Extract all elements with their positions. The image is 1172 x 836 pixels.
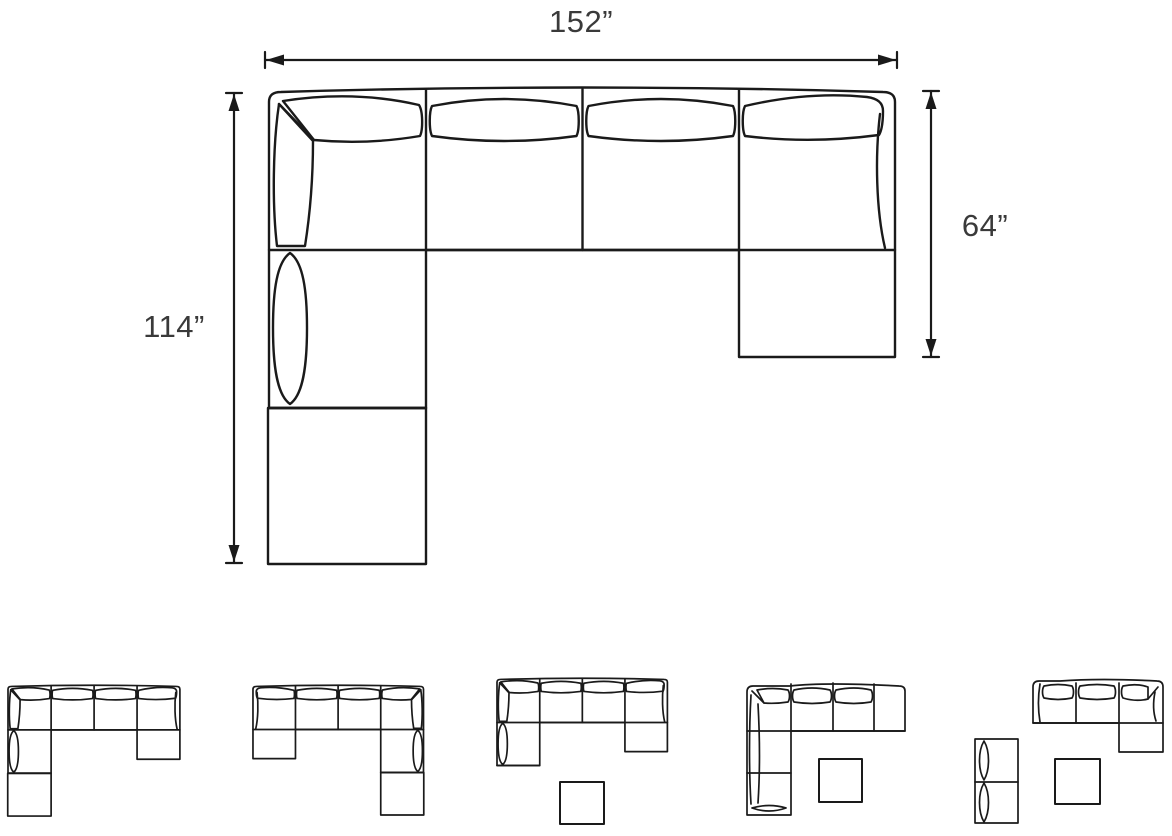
detached-ottoman: [1055, 759, 1100, 804]
thumbnail-config-4: [747, 683, 905, 815]
detached-ottoman: [560, 782, 604, 824]
thumbnail-config-1: [8, 685, 180, 816]
arrowhead-left-icon: [266, 55, 284, 66]
dimension-right-depth: 64”: [923, 91, 1008, 357]
dimension-overall-width: 152”: [265, 4, 897, 68]
configuration-thumbnail-row: [8, 678, 1163, 824]
sofa-dimension-diagram: 152” 114” 64”: [0, 0, 1172, 836]
arrowhead-down-icon: [926, 339, 937, 356]
main-sectional-drawing: 152” 114” 64”: [143, 4, 1008, 564]
two-seat-module: [975, 739, 1018, 823]
thumbnail-config-2: [253, 685, 424, 815]
arrowhead-up-icon: [926, 92, 937, 109]
arrowhead-up-icon: [229, 94, 240, 111]
thumbnail-config-3: [497, 678, 667, 824]
main-sofa-outline: [268, 88, 895, 565]
left-depth-label: 114”: [143, 309, 205, 344]
detached-ottoman: [819, 759, 862, 802]
arrowhead-down-icon: [229, 545, 240, 562]
diagram-canvas: 152” 114” 64”: [0, 0, 1172, 836]
right-depth-label: 64”: [962, 208, 1008, 243]
thumbnail-config-5: [975, 680, 1163, 824]
overall-width-label: 152”: [549, 4, 613, 39]
arrowhead-right-icon: [878, 55, 896, 66]
dimension-left-depth: 114”: [143, 93, 242, 563]
